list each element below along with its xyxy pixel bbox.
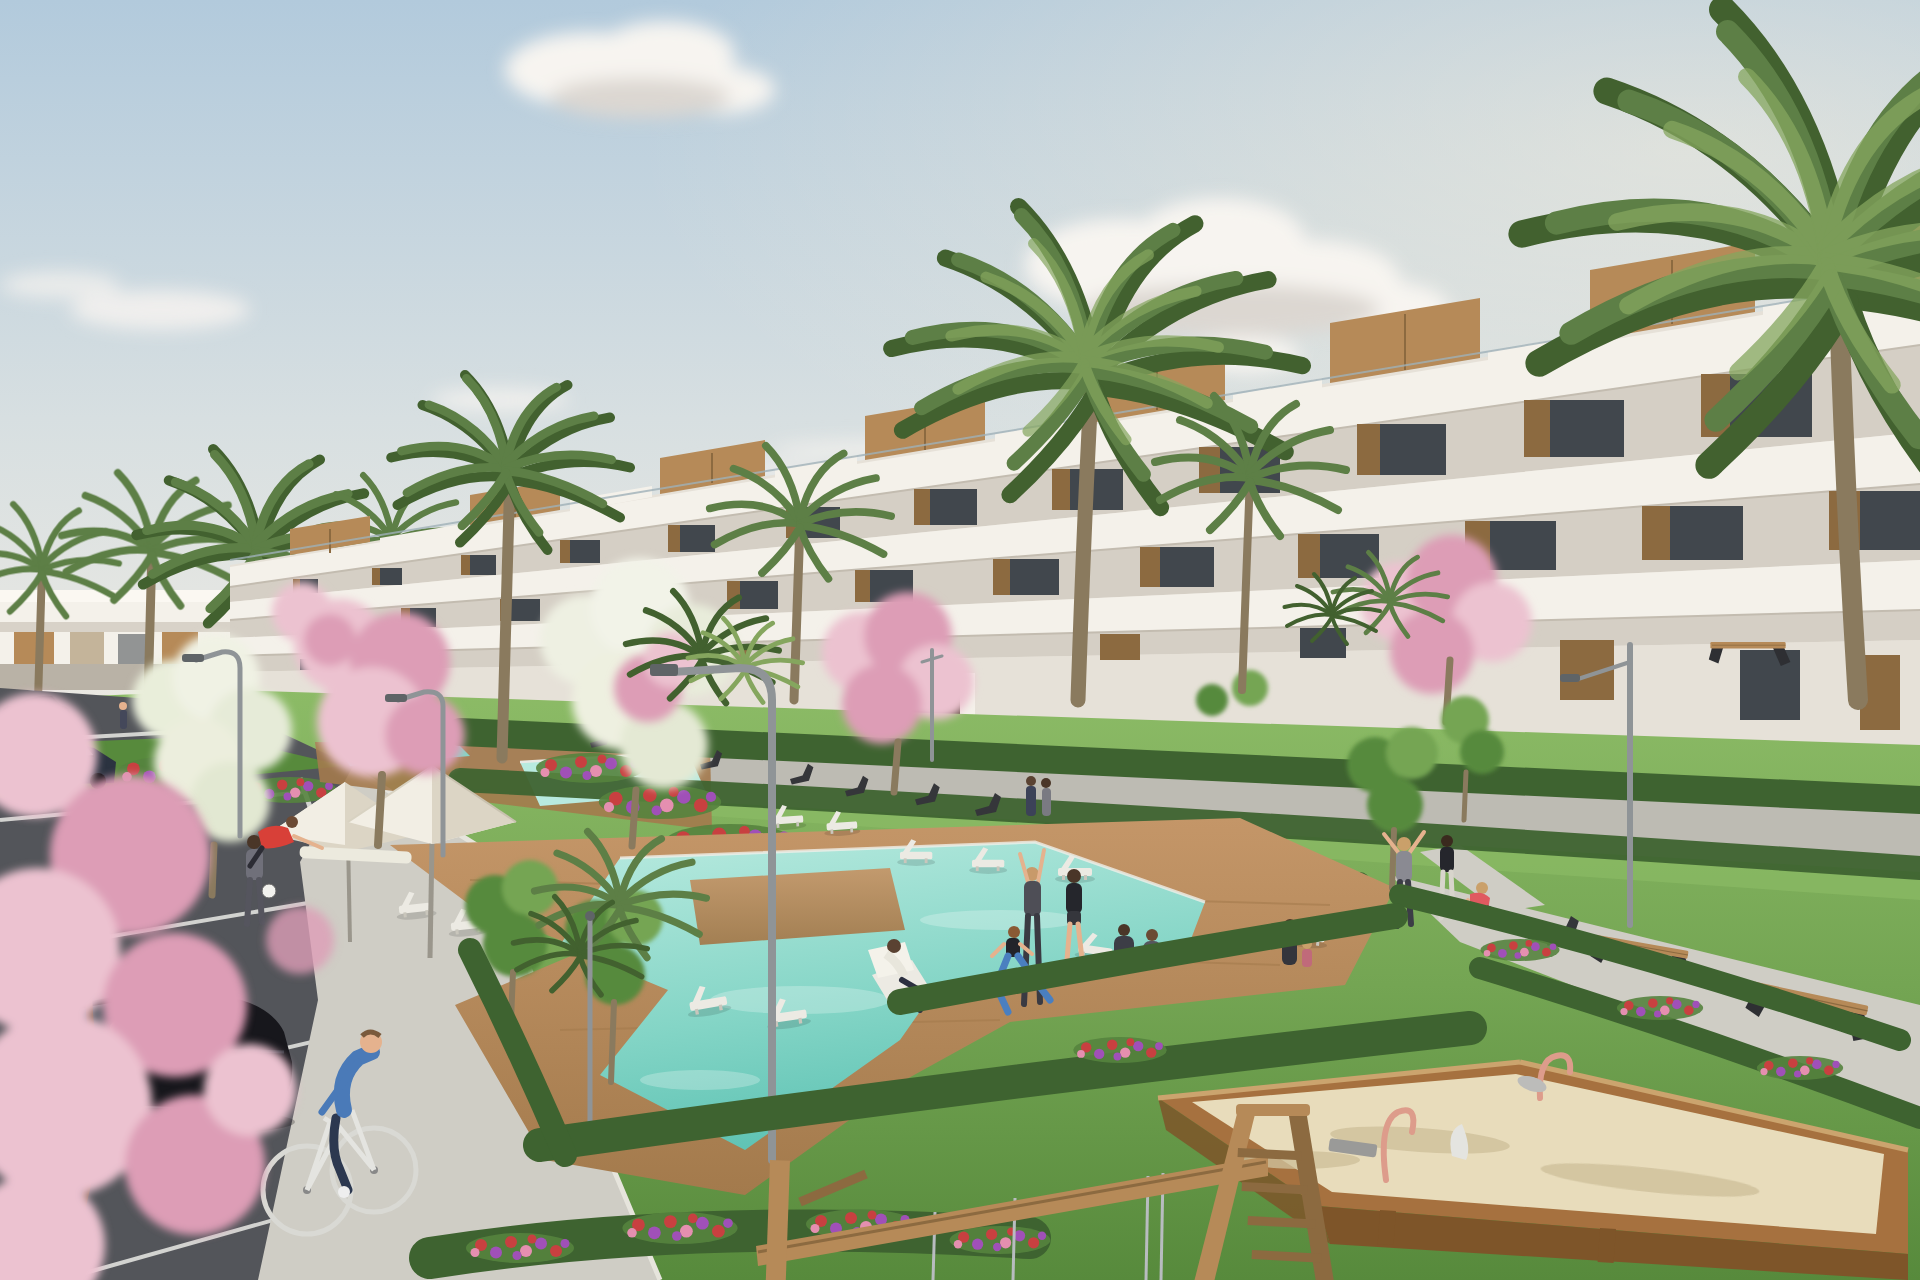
scene-canvas	[0, 0, 1920, 1280]
render-viewport	[0, 0, 1920, 1280]
